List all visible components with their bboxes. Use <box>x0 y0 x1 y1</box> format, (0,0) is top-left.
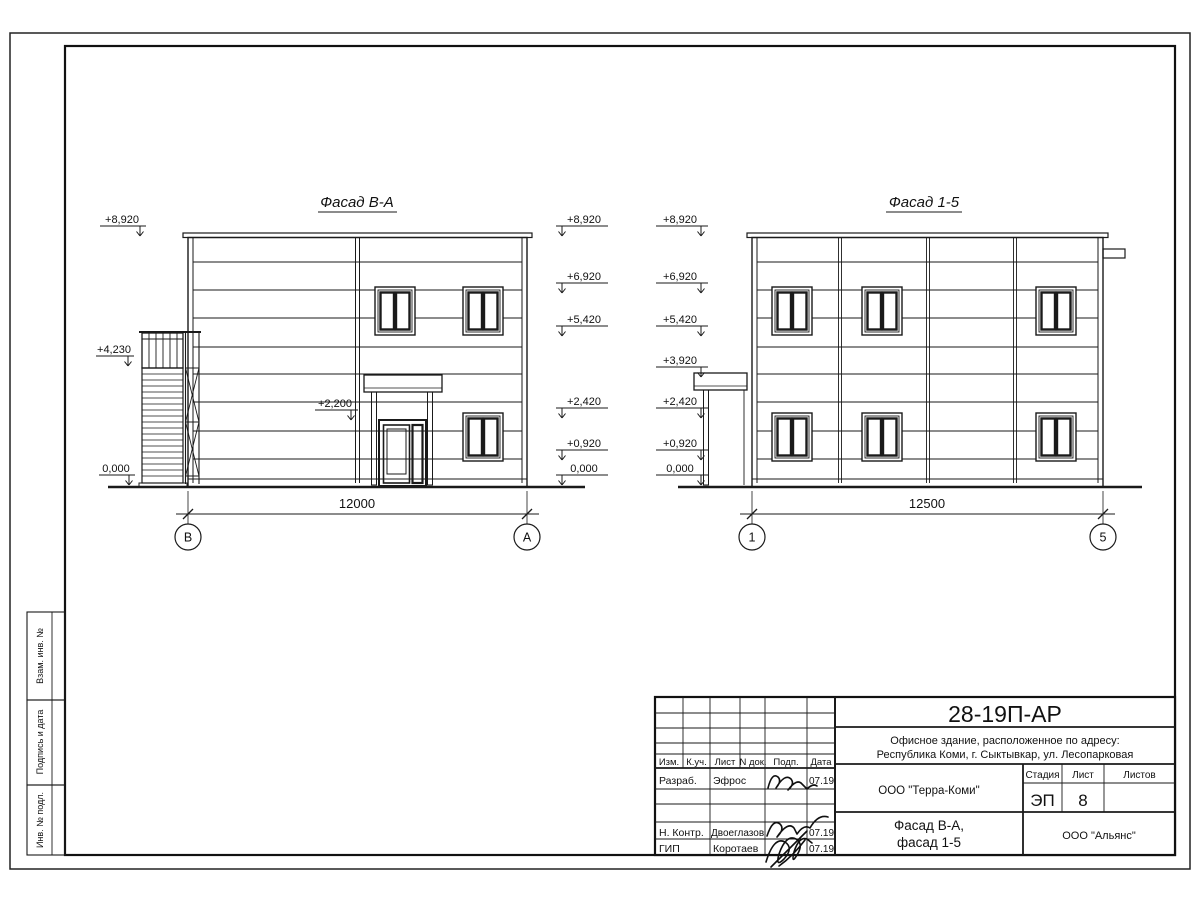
window <box>862 287 902 335</box>
row-date: 07.19 <box>809 828 834 839</box>
window <box>463 413 503 461</box>
window <box>375 287 415 335</box>
object-address-line2: Республика Коми, г. Сыктывкар, ул. Лесоп… <box>877 749 1134 761</box>
sheet-label: Лист <box>1072 770 1094 781</box>
axis-label: 5 <box>1100 531 1107 545</box>
row-name: Эфрос <box>713 775 746 787</box>
dimension-text: 12000 <box>339 496 375 511</box>
window <box>1036 287 1076 335</box>
elevation-value: +3,920 <box>663 355 697 367</box>
elevation-value: +5,420 <box>567 314 601 326</box>
stage-value: ЭП <box>1030 791 1054 810</box>
sheet-number: 8 <box>1078 791 1087 810</box>
axis-label: А <box>523 531 532 545</box>
window <box>772 287 812 335</box>
window <box>772 413 812 461</box>
window <box>1036 413 1076 461</box>
elevation-value: +8,920 <box>105 214 139 226</box>
elevation-value: +8,920 <box>567 214 601 226</box>
elevation-value: +2,420 <box>567 396 601 408</box>
drawing-title-line2: фасад 1-5 <box>897 835 961 850</box>
elevation-value: +8,920 <box>663 214 697 226</box>
col-kuch: К.уч. <box>686 757 707 768</box>
dimension-text: 12500 <box>909 496 945 511</box>
contractor-org: ООО "Альянс" <box>1062 830 1136 842</box>
elevation-value: 0,000 <box>570 463 598 475</box>
elevation-value: +6,920 <box>663 271 697 283</box>
drawing-title-line1: Фасад В-А, <box>894 818 964 833</box>
row-name: Двоеглазов <box>711 828 764 839</box>
axis-label: 1 <box>749 531 756 545</box>
elevation-value: +0,920 <box>663 438 697 450</box>
side-label: Взам. инв. № <box>35 628 45 684</box>
drawing-canvas: Взам. инв. № Подпись и дата Инв. № подл.… <box>0 0 1200 900</box>
row-name: Коротаев <box>713 843 759 855</box>
elevation-value: 0,000 <box>102 463 130 475</box>
object-address-line1: Офисное здание, расположенное по адресу: <box>890 735 1119 747</box>
side-label: Подпись и дата <box>35 710 45 775</box>
window <box>862 413 902 461</box>
row-role: Н. Контр. <box>659 827 704 839</box>
drawing-sheet: Взам. инв. № Подпись и дата Инв. № подл.… <box>0 0 1200 900</box>
facade-15-title: Фасад 1-5 <box>889 194 960 211</box>
col-podp: Подп. <box>773 757 798 768</box>
side-label: Инв. № подл. <box>35 792 45 848</box>
design-org: ООО "Терра-Коми" <box>878 785 979 797</box>
elevation-value: +4,230 <box>97 344 131 356</box>
elevation-value: +2,200 <box>318 398 352 410</box>
window <box>463 287 503 335</box>
col-data: Дата <box>810 757 832 768</box>
row-date: 07.19 <box>809 844 834 855</box>
col-izm: Изм. <box>659 757 679 768</box>
elevation-value: +0,920 <box>567 438 601 450</box>
facade-ba-title: Фасад В-А <box>320 194 394 211</box>
elevation-value: 0,000 <box>666 463 694 475</box>
row-role: ГИП <box>659 843 680 855</box>
sheets-label: Листов <box>1123 770 1156 781</box>
project-code: 28-19П-АР <box>948 701 1062 727</box>
row-role: Разраб. <box>659 775 697 787</box>
elevation-value: +6,920 <box>567 271 601 283</box>
stage-label: Стадия <box>1025 770 1059 781</box>
col-ndoc: N док. <box>739 757 766 768</box>
title-block: Изм. К.уч. Лист N док. Подп. Дата Разраб… <box>655 697 1175 867</box>
elevation-value: +2,420 <box>663 396 697 408</box>
col-list: Лист <box>715 757 736 768</box>
elevation-value: +5,420 <box>663 314 697 326</box>
axis-label: В <box>184 531 192 545</box>
